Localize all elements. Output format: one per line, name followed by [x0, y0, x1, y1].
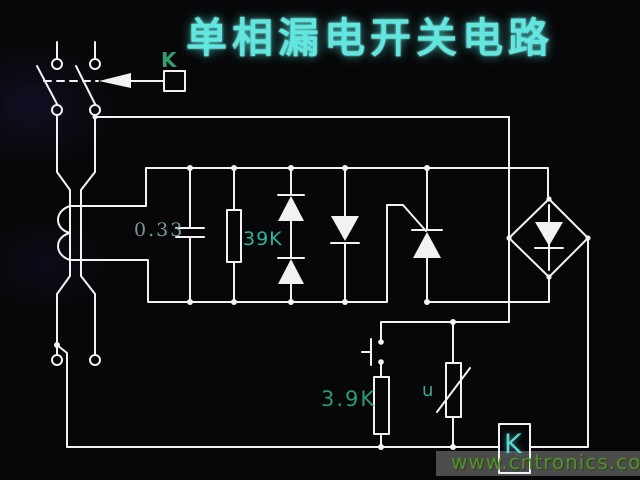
resistor-39k — [227, 168, 241, 302]
ct-secondary-coil — [58, 206, 70, 260]
wire — [381, 117, 509, 340]
switch-blade-left — [37, 66, 57, 104]
resistor-body — [374, 377, 389, 434]
capacitor-label: 0.33 — [134, 219, 184, 241]
resistor-body — [227, 210, 241, 262]
junction-dot — [424, 299, 430, 305]
top-rail — [70, 168, 548, 206]
switch-terminal — [90, 105, 100, 115]
junction-dot — [424, 165, 430, 171]
varistor — [437, 322, 470, 447]
thyristor — [412, 168, 442, 302]
resistor-39k-label: 39K — [243, 228, 283, 250]
wire — [530, 238, 588, 447]
switch-terminal — [52, 105, 62, 115]
current-transformer — [58, 206, 70, 260]
resistor-3p9k-label: 3.9K — [321, 387, 376, 411]
bottom-rail-and-gate — [70, 205, 426, 302]
varistor-label: u — [422, 380, 433, 401]
junction-dot — [378, 444, 384, 450]
diode-reverse — [331, 168, 359, 302]
button-contact — [378, 339, 384, 345]
bridge-node — [546, 196, 551, 201]
bridge-node — [546, 274, 551, 279]
junction-dot — [342, 165, 348, 171]
circuit-drawing — [0, 0, 640, 480]
watermark-text: www.cntronics.com — [451, 450, 640, 474]
junction-dot — [342, 299, 348, 305]
diode-triangle — [278, 196, 304, 221]
diode-triangle — [331, 216, 359, 241]
load-terminal-right — [90, 355, 100, 365]
junction-dot — [231, 299, 237, 305]
junction-dot — [187, 165, 193, 171]
varistor-diagonal — [437, 368, 470, 412]
bridge-node — [506, 235, 511, 240]
test-button — [362, 339, 384, 377]
junction-dot — [93, 115, 98, 120]
switch-blade-right — [76, 66, 95, 104]
junction-dot — [187, 299, 193, 305]
page-title: 单相漏电开关电路 — [186, 4, 554, 64]
bridge-dc-minus-wire — [427, 277, 549, 302]
relay-linkage-box — [164, 71, 185, 91]
switch-terminal — [52, 59, 62, 69]
junction-dot — [288, 299, 294, 305]
junction-dot — [288, 165, 294, 171]
ac-feed-line — [381, 117, 509, 340]
diode-triangle — [535, 222, 563, 246]
resistor-3p9k — [374, 377, 389, 447]
junction-dot — [231, 165, 237, 171]
diode-triangle — [278, 259, 304, 284]
thyristor-triangle — [413, 232, 441, 258]
trip-arrow-icon — [99, 73, 131, 88]
schematic-canvas: 单相漏电开关电路 K 0.33 39K 3.9K u K www.cntroni… — [0, 0, 640, 480]
junction-dot — [450, 319, 456, 325]
load-terminal-left — [52, 355, 62, 365]
conductor-right — [81, 115, 95, 355]
relay-linkage-label: K — [161, 48, 177, 72]
switch-terminal — [90, 59, 100, 69]
